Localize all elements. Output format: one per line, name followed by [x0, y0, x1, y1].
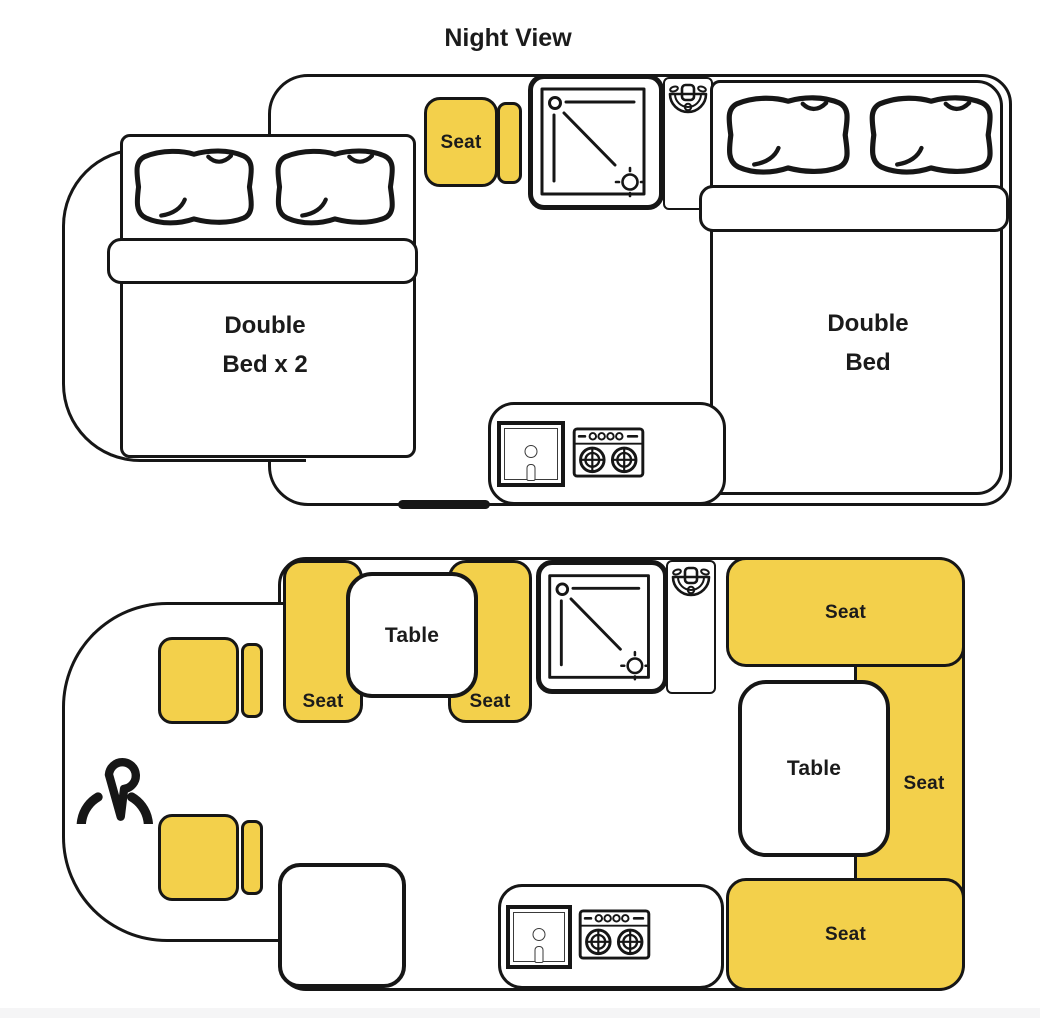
seat-label: Seat: [303, 692, 344, 711]
rear-dinette-top-seat: Seat: [726, 557, 965, 667]
bed-label-line1: Double: [753, 304, 983, 343]
table-label: Table: [787, 758, 841, 779]
sliding-door-marker: [398, 500, 490, 509]
sink-icon: [506, 905, 572, 969]
stove-icon: [572, 427, 645, 478]
shower-cubicle: [536, 560, 668, 694]
sink-drain: [525, 445, 538, 458]
bed-blanket-band: [107, 238, 418, 284]
passenger-seat: [158, 814, 239, 901]
toilet-icon: [668, 562, 714, 624]
footer-strip: [0, 1008, 1040, 1018]
pillow-icon: [272, 146, 398, 228]
sink-icon: [497, 421, 565, 487]
sink-drain: [533, 928, 546, 941]
driver-seat: [158, 637, 239, 724]
seat-headrest: [497, 102, 522, 184]
front-dinette-table: Table: [346, 572, 478, 698]
seat-label: Seat: [441, 133, 482, 152]
storage-box: [278, 863, 406, 988]
seat-label: Seat: [470, 692, 511, 711]
bed-blanket-band: [699, 185, 1009, 232]
overcab-bed-label: Double Bed x 2: [150, 306, 380, 384]
rear-dinette-table: Table: [738, 680, 890, 857]
camper-floorplan: Night View Double Bed x 2 Seat Do: [0, 0, 1040, 1018]
seat-headrest: [241, 820, 263, 895]
sink-faucet: [527, 464, 536, 481]
seat-label: Seat: [825, 603, 866, 622]
seat-label: Seat: [904, 774, 945, 793]
pillow-icon: [866, 93, 996, 177]
shower-icon: [533, 79, 659, 205]
seat-label: Seat: [825, 925, 866, 944]
rear-dinette-side-seat-label: Seat: [886, 770, 962, 796]
rear-bed-label: Double Bed: [753, 304, 983, 382]
page-title: Night View: [358, 24, 658, 53]
bed-label-line2: Bed: [753, 343, 983, 382]
shower-cubicle: [528, 74, 664, 210]
brand-p-logo-icon: [72, 722, 156, 824]
bed-label-line1: Double: [150, 306, 380, 345]
sink-faucet: [535, 946, 544, 963]
bed-label-line2: Bed x 2: [150, 345, 380, 384]
toilet-icon: [665, 79, 711, 141]
table-label: Table: [385, 625, 439, 646]
pillow-icon: [131, 146, 257, 228]
seat-headrest: [241, 643, 263, 718]
night-front-seat: Seat: [424, 97, 498, 187]
stove-icon: [578, 909, 651, 960]
shower-icon: [541, 565, 663, 689]
rear-dinette-bottom-seat: Seat: [726, 878, 965, 991]
pillow-icon: [723, 93, 853, 177]
